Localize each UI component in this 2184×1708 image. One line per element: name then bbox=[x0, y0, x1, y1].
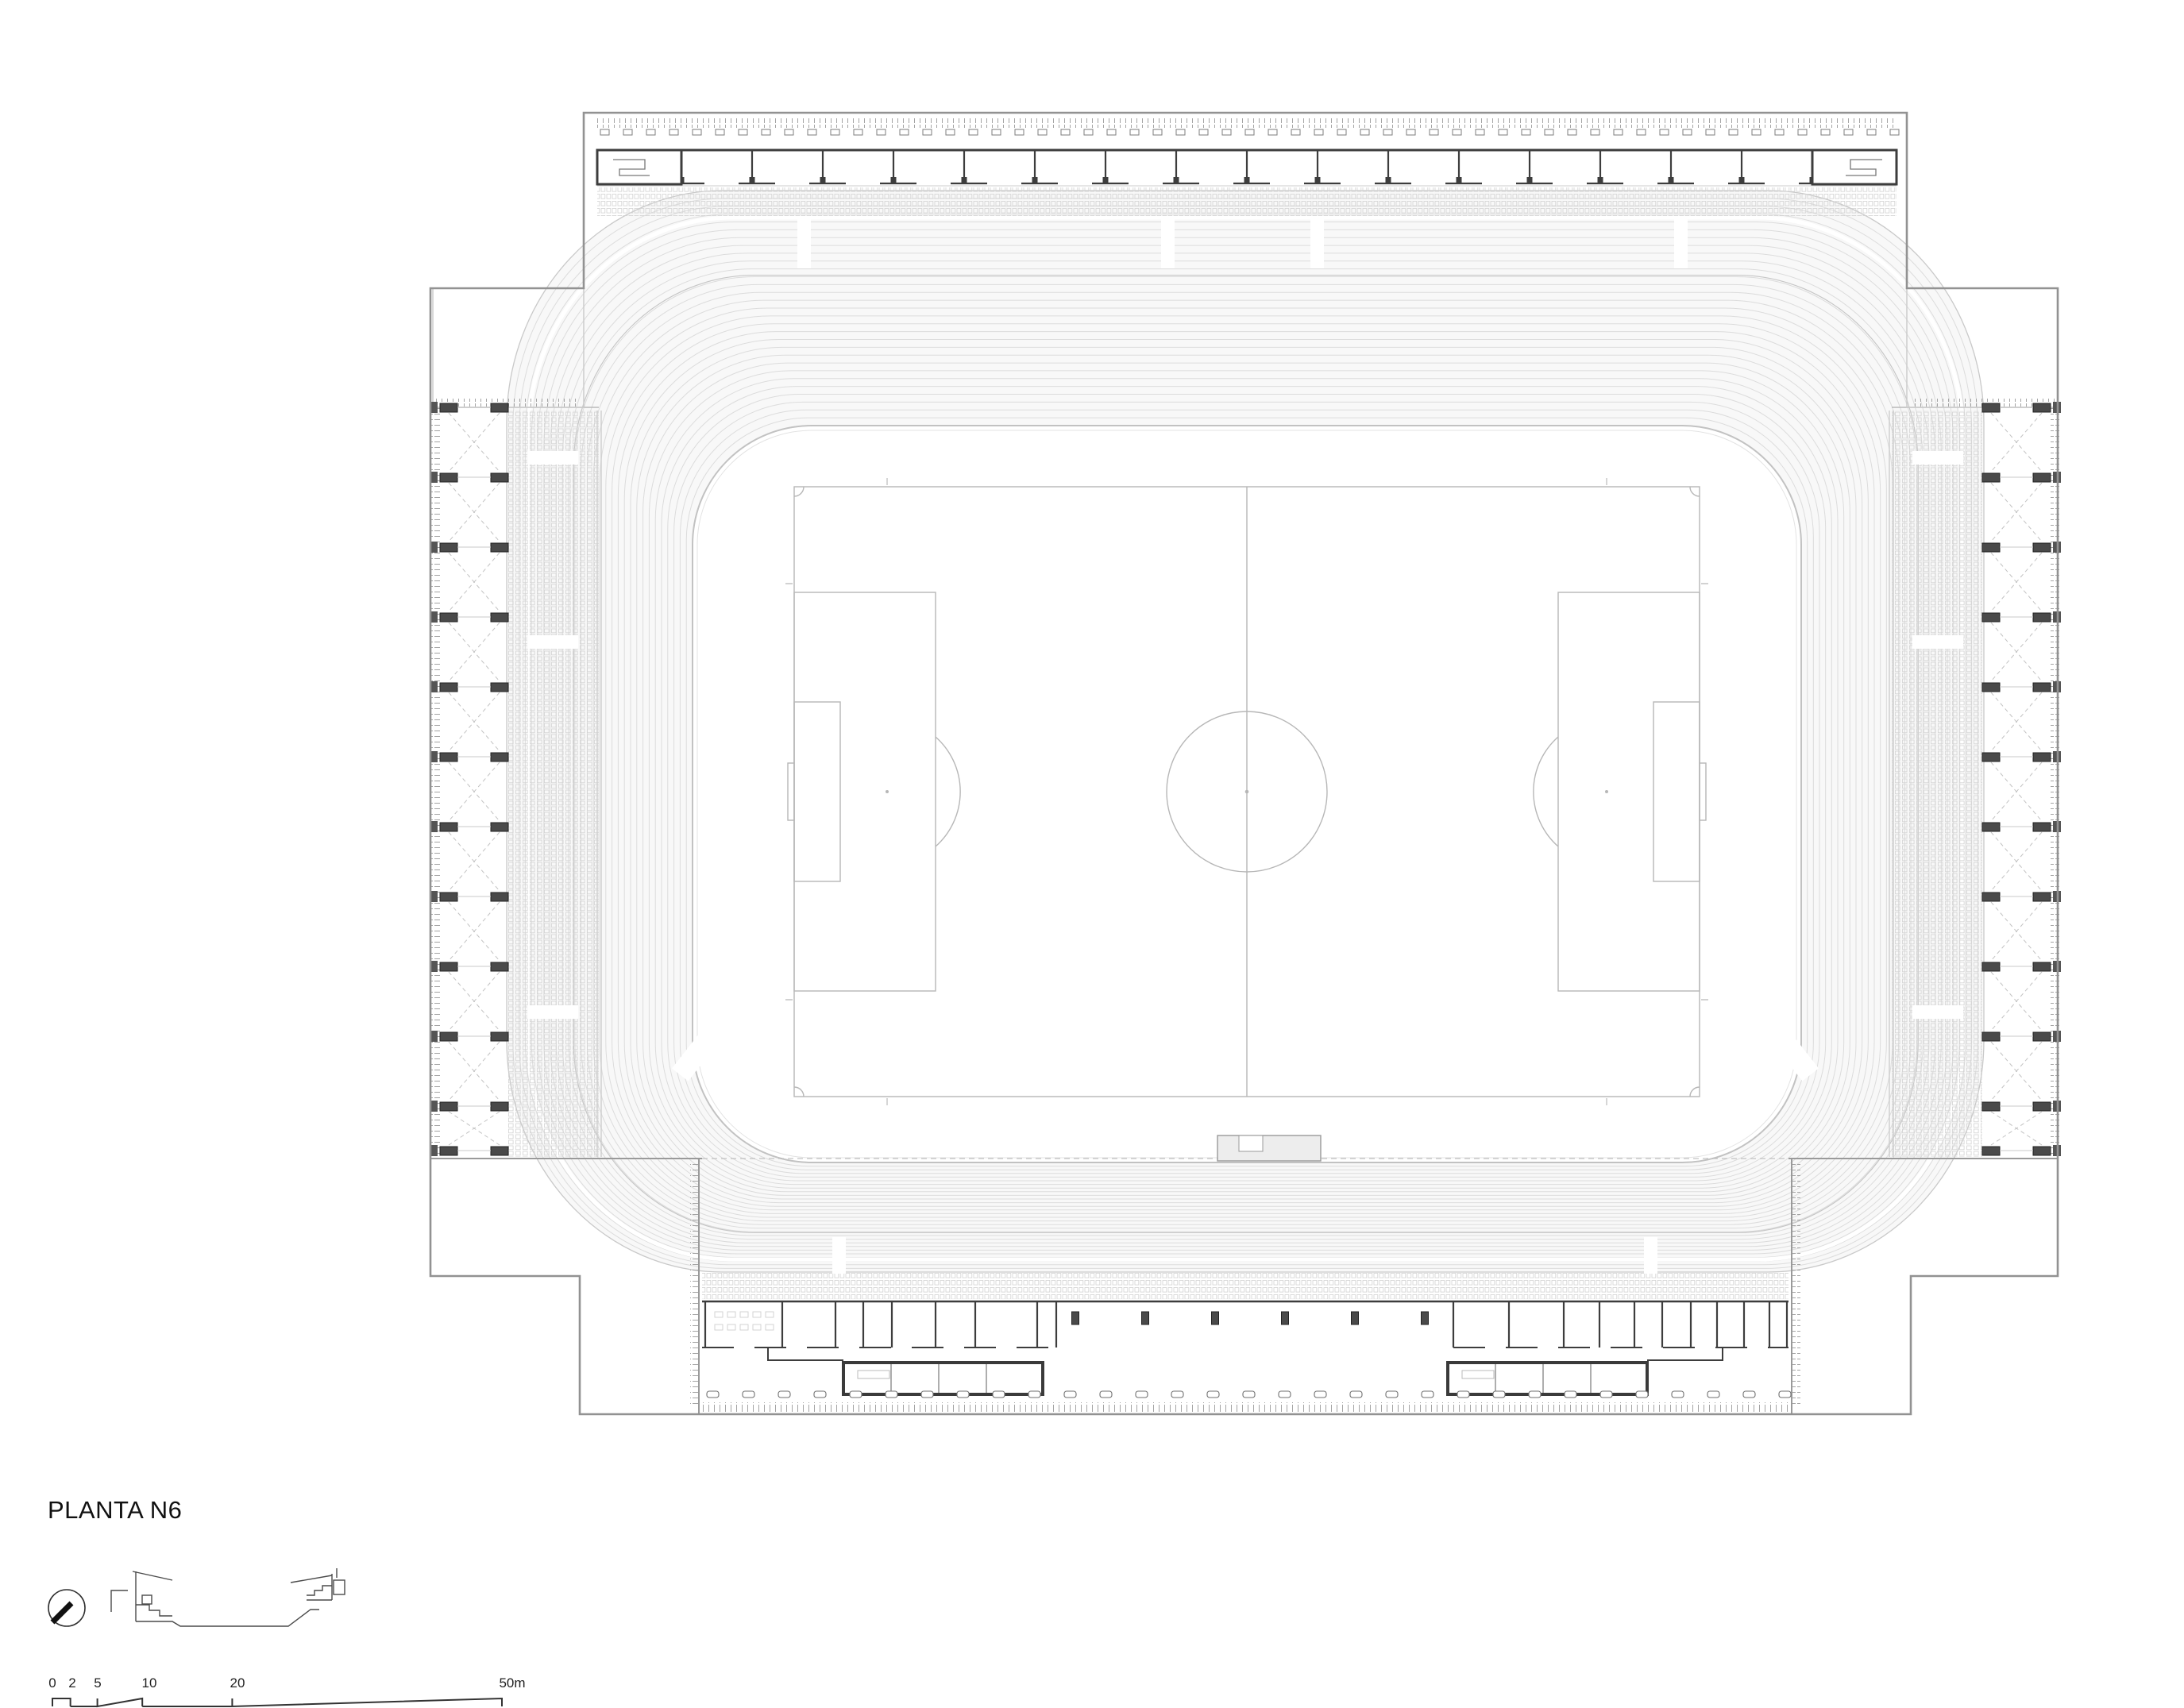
scale-bar-line bbox=[52, 1698, 502, 1706]
scale-label-5: 5 bbox=[94, 1675, 101, 1691]
west-seat-strip bbox=[508, 411, 599, 1157]
scale-label-0: 0 bbox=[48, 1675, 56, 1691]
south-seat-strip bbox=[702, 1272, 1788, 1299]
north-skybox-band bbox=[597, 129, 1899, 186]
east-seat-strip bbox=[1892, 411, 1982, 1157]
north-arrow-icon bbox=[48, 1590, 85, 1626]
scale-label-2: 2 bbox=[68, 1675, 75, 1691]
scale-label-20: 20 bbox=[230, 1675, 245, 1691]
north-upper-seat-strip bbox=[597, 187, 1897, 216]
plan-title: PLANTA N6 bbox=[48, 1496, 182, 1525]
sheet: PLANTA N6 0 2 5 10 20 50m bbox=[0, 0, 2184, 1708]
south-hospitality-band bbox=[702, 1301, 1791, 1398]
scale-label-50: 50m bbox=[499, 1675, 525, 1691]
stadium-floor-plan bbox=[0, 0, 2184, 1708]
section-key-icon bbox=[111, 1568, 345, 1626]
scale-label-10: 10 bbox=[142, 1675, 157, 1691]
